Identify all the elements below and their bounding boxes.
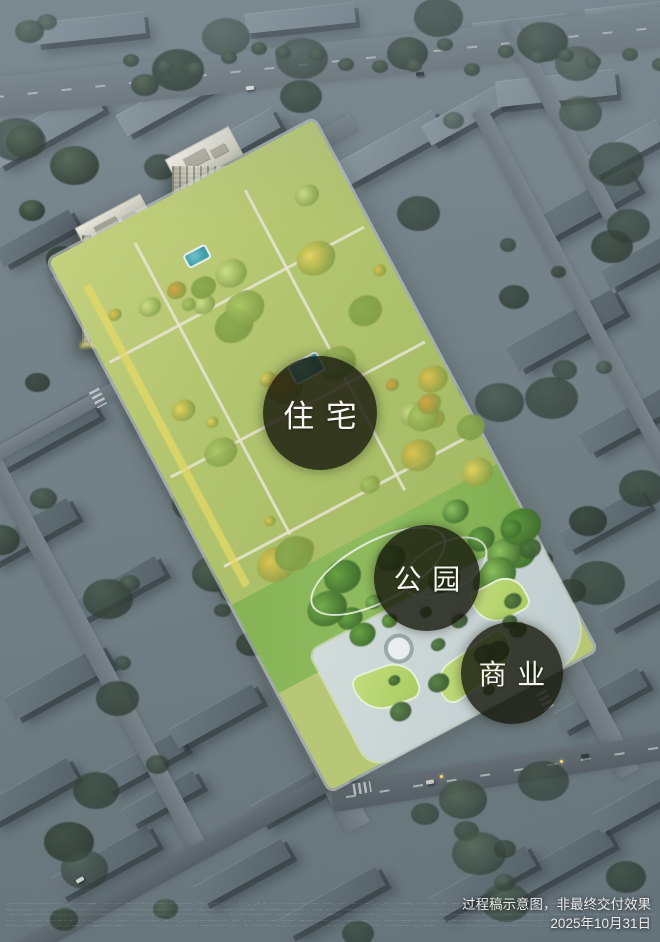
garden-tree	[383, 376, 402, 394]
aerial-masterplan-render: 住宅 公园 商业 ‥·–···——·–··—–··–·· ‥···–—·——— …	[0, 0, 660, 942]
garden-tree	[371, 262, 388, 279]
garden-tree	[291, 180, 322, 210]
watermark: 过程稿示意图，非最终交付效果 2025年10月31日	[462, 895, 651, 933]
garden-tree	[167, 395, 199, 426]
zone-label-residential-text: 住宅	[271, 391, 368, 436]
zone-label-residential: 住宅	[263, 356, 377, 470]
watermark-note: 过程稿示意图，非最终交付效果	[462, 895, 651, 914]
zone-label-park-text: 公园	[383, 558, 471, 598]
garden-tree	[262, 514, 277, 529]
garden-tree	[135, 294, 164, 322]
garden-tree	[343, 290, 387, 332]
plaza-circle	[379, 628, 420, 669]
zone-label-park: 公园	[374, 525, 480, 631]
plaza-tree	[429, 635, 448, 653]
garden-tree	[457, 452, 499, 492]
water-feature	[182, 243, 212, 269]
garden-tree	[204, 415, 220, 431]
zone-label-commercial-text: 商业	[468, 653, 556, 693]
watermark-date: 2025年10月31日	[462, 914, 651, 933]
zone-label-commercial: 商业	[461, 622, 563, 724]
rooftop-structure	[210, 143, 228, 158]
park-tree	[438, 495, 473, 528]
plaza-lawn	[349, 656, 424, 717]
